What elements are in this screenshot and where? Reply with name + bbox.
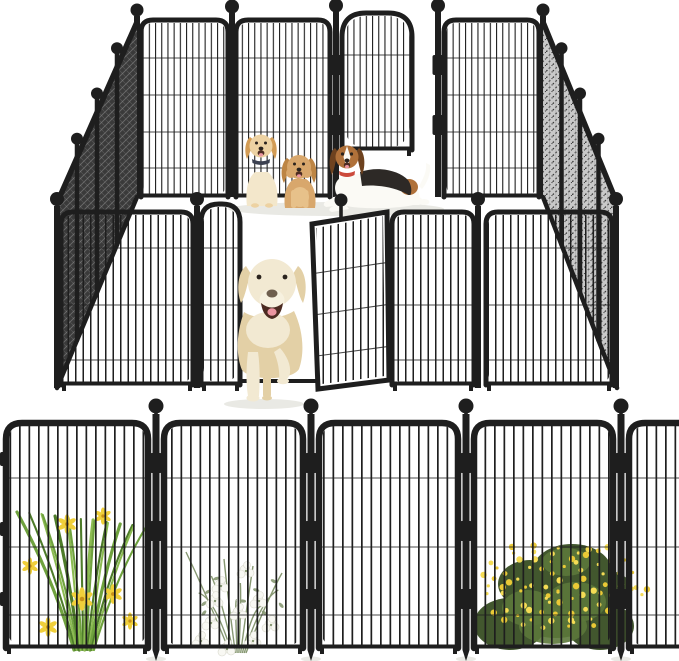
product-image-dog-playpen [0, 0, 679, 661]
dog-tongue [345, 165, 349, 168]
dog-eye [341, 152, 344, 155]
ball-finial [593, 133, 605, 145]
dog-eye [293, 163, 296, 166]
ball-finial [574, 88, 586, 100]
ball-finial [71, 133, 83, 145]
ball-finial [304, 399, 319, 414]
fence-panel-1 [6, 423, 148, 654]
ball-finial [609, 192, 623, 206]
dog-eye [302, 163, 305, 166]
front-gate-door-open [312, 194, 389, 390]
dog-tail [419, 163, 430, 189]
dog-eye [257, 275, 262, 280]
fence-panel [444, 20, 539, 197]
ball-finial [459, 399, 474, 414]
labrador-shadow [224, 399, 304, 409]
dog-nose [345, 159, 350, 163]
dog-eye [283, 275, 288, 280]
hinge-tab [0, 522, 9, 536]
playpen-front-wall [50, 192, 623, 391]
dog-leg [252, 182, 258, 205]
fence-panel-4 [474, 423, 613, 654]
dog-front-leg [247, 352, 260, 396]
dog-tongue [267, 308, 276, 316]
dog-leg [291, 190, 297, 208]
dog-tongue [259, 153, 263, 156]
dog-eye [264, 142, 267, 145]
fence-panel-3 [319, 423, 458, 654]
playpen-back-wall [131, 0, 550, 197]
dog-chest [246, 312, 290, 348]
dog-eye [350, 152, 353, 155]
front-arch-panel [201, 204, 240, 391]
dog-nose [259, 147, 264, 151]
ball-finial [149, 399, 164, 414]
dog-leg [303, 190, 309, 208]
ball-finial [471, 192, 485, 206]
dog-tongue [297, 174, 301, 177]
fence-panels-row [0, 399, 679, 661]
fence-panel [141, 20, 228, 197]
dog-nose [297, 168, 302, 172]
dog-paw [247, 395, 260, 402]
fence-panel [392, 212, 474, 391]
ball-finial [335, 194, 348, 207]
scene-canvas [0, 0, 679, 661]
dog-leg [266, 182, 272, 205]
back-gate-door [342, 13, 412, 156]
dog-nose [267, 290, 278, 298]
fence-panel [61, 212, 193, 391]
fence-panel-2 [164, 423, 303, 654]
ball-finial [91, 88, 103, 100]
ball-finial [50, 192, 64, 206]
fence-panel-5 [629, 423, 679, 654]
fence-panel [486, 212, 612, 391]
hinge-tab [0, 592, 9, 606]
hinge-tab [0, 452, 9, 466]
dog-paw [277, 378, 289, 384]
ball-finial [556, 42, 568, 54]
ball-finial [614, 399, 629, 414]
ball-finial [111, 42, 123, 54]
ball-finial [225, 0, 239, 14]
ball-finial [190, 192, 204, 206]
dog-eye [255, 142, 258, 145]
dog-hind-leg [263, 368, 271, 398]
